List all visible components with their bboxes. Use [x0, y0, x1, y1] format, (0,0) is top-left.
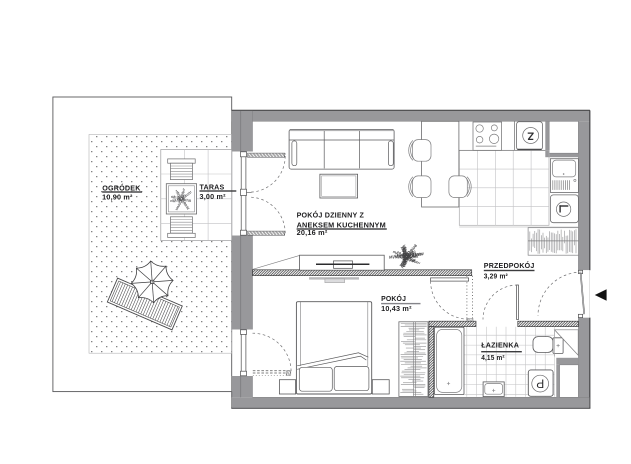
svg-text:P: P	[536, 377, 544, 391]
svg-text:Z: Z	[527, 130, 534, 142]
svg-text:OGRÓDEK: OGRÓDEK	[102, 183, 141, 192]
svg-text:POKÓJ: POKÓJ	[381, 294, 406, 303]
svg-text:PRZEDPOKÓJ: PRZEDPOKÓJ	[484, 261, 535, 270]
svg-text:10,43 m²: 10,43 m²	[381, 304, 412, 313]
svg-text:10,90 m²: 10,90 m²	[102, 193, 133, 202]
svg-text:ŁAZIENKA: ŁAZIENKA	[481, 341, 519, 350]
svg-text:TARAS: TARAS	[200, 182, 225, 191]
svg-text:20,16 m²: 20,16 m²	[297, 228, 328, 237]
svg-text:POKÓJ DZIENNY Z: POKÓJ DZIENNY Z	[297, 210, 365, 219]
svg-text:3,29 m²: 3,29 m²	[484, 271, 508, 280]
svg-text:4,15 m²: 4,15 m²	[481, 353, 505, 362]
svg-text:3,00 m²: 3,00 m²	[200, 192, 227, 201]
